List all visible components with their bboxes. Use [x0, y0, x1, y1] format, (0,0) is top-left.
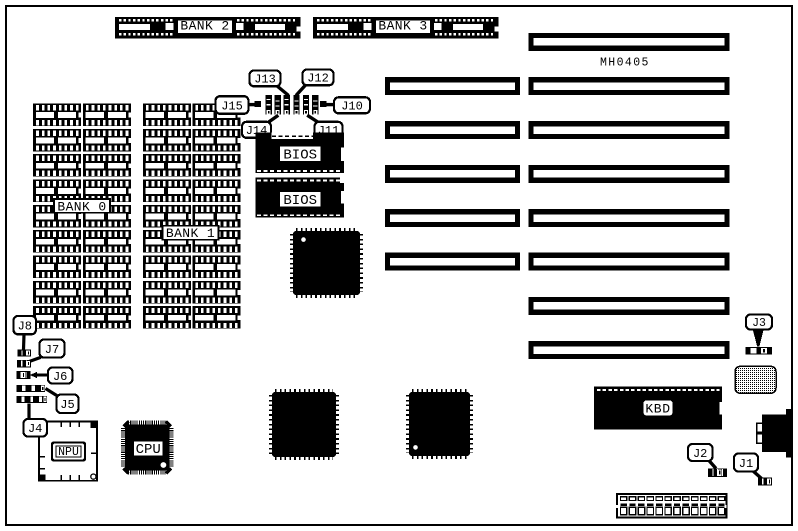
- svg-text:J6: J6: [53, 370, 67, 384]
- svg-text:MH0405: MH0405: [600, 57, 650, 70]
- svg-text:J10: J10: [341, 100, 363, 114]
- svg-text:J2: J2: [693, 447, 707, 461]
- svg-text:BANK 0: BANK 0: [57, 199, 106, 214]
- svg-text:BANK 1: BANK 1: [166, 226, 215, 241]
- svg-text:J7: J7: [45, 343, 59, 357]
- svg-text:NPU: NPU: [58, 446, 79, 459]
- svg-text:BIOS: BIOS: [283, 193, 317, 209]
- svg-text:J8: J8: [18, 320, 32, 334]
- svg-text:BANK 2: BANK 2: [180, 19, 229, 34]
- svg-text:J1: J1: [739, 457, 753, 471]
- svg-text:J15: J15: [221, 99, 243, 113]
- svg-text:J12: J12: [307, 72, 329, 86]
- svg-text:J13: J13: [254, 73, 276, 87]
- svg-text:CPU: CPU: [136, 442, 161, 458]
- svg-text:KBD: KBD: [645, 401, 670, 416]
- svg-text:J4: J4: [28, 422, 42, 436]
- svg-text:J5: J5: [60, 398, 74, 412]
- svg-text:BANK 3: BANK 3: [378, 19, 427, 34]
- svg-text:J3: J3: [752, 317, 766, 330]
- svg-text:BIOS: BIOS: [283, 147, 317, 163]
